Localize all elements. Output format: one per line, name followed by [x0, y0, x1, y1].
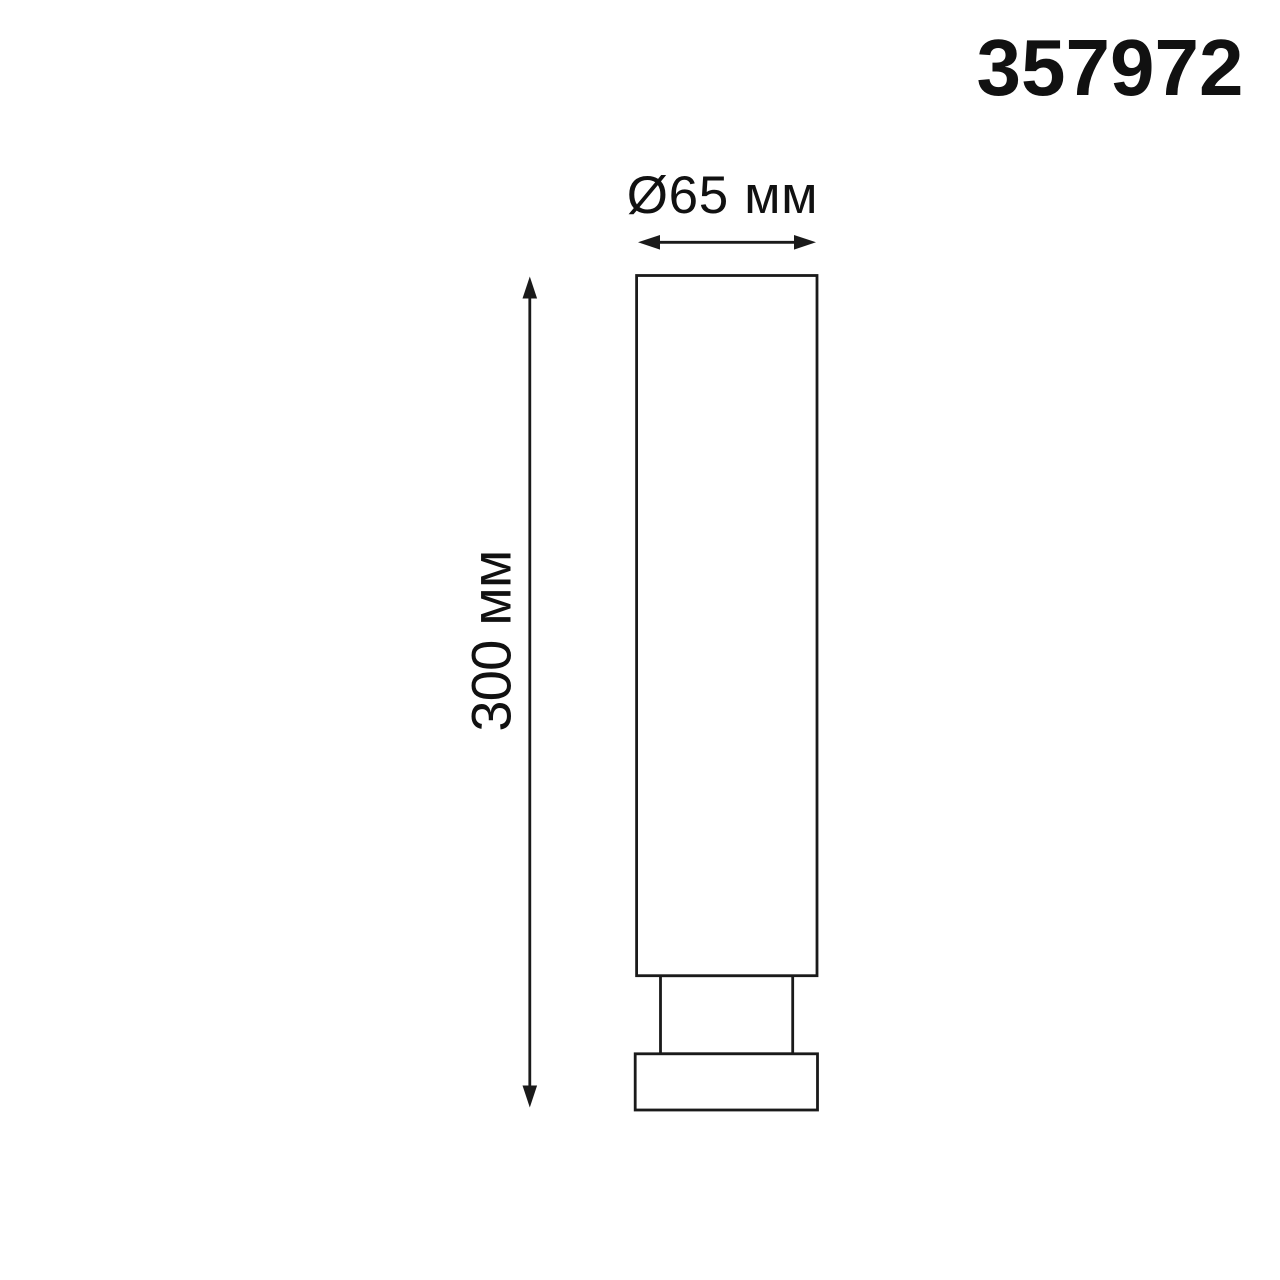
svg-text:Ø65 мм: Ø65 мм [627, 166, 818, 225]
svg-text:300 мм: 300 мм [460, 550, 523, 731]
svg-text:357972: 357972 [977, 23, 1244, 112]
